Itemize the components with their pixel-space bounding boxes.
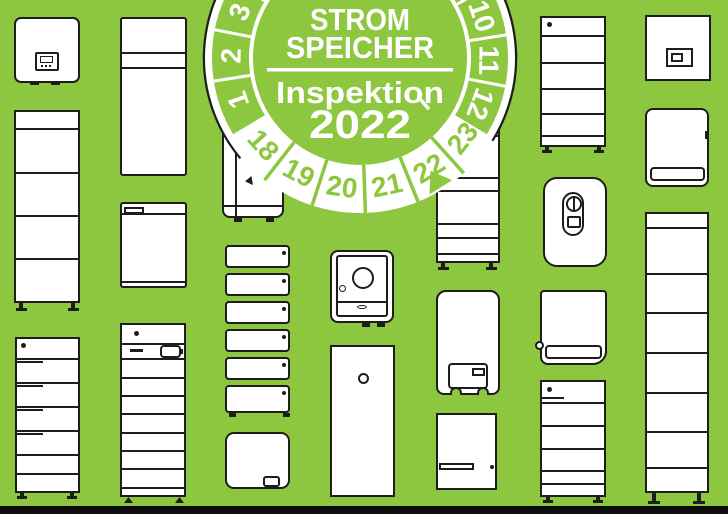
vent-slot (17, 433, 43, 435)
slim-storage-cabinet (120, 17, 187, 176)
cabinet-with-slot (540, 290, 607, 365)
device-foot (648, 501, 660, 504)
stackable-battery-module (225, 357, 290, 380)
vent-dash (130, 349, 143, 352)
seam-line (122, 67, 185, 69)
seam-line (122, 377, 184, 379)
vent-slot (650, 167, 705, 181)
round-storage-with-control (543, 177, 607, 267)
led-indicator (547, 22, 552, 27)
seam-line (542, 483, 604, 485)
seam-line (542, 448, 604, 450)
badge-title-line2: SPEICHER (286, 30, 434, 65)
storage-with-display (436, 290, 500, 395)
device-foot (68, 308, 79, 311)
vent-slot (545, 345, 602, 359)
device-foot (594, 150, 604, 153)
side-button (339, 285, 346, 292)
device-foot (17, 496, 27, 499)
device-foot (652, 493, 656, 501)
poster-background: 123101112181920212223 STROM SPEICHER Ins… (0, 0, 728, 514)
seam-line (122, 432, 184, 434)
stackable-battery-module (225, 385, 290, 413)
inverter-with-display (645, 15, 711, 81)
led-indicator (282, 307, 286, 311)
seam-line (122, 358, 184, 360)
device-foot (693, 501, 705, 504)
status-slot (357, 305, 367, 309)
seam-line (122, 52, 185, 54)
battery-tower-vented (15, 337, 80, 493)
foot-arch (477, 387, 489, 395)
seam-line (647, 392, 707, 394)
connector-nub (51, 82, 60, 85)
vent-slot (542, 397, 564, 399)
seam-line (338, 301, 386, 303)
battery-icon-nub (180, 349, 183, 354)
connector-nub (30, 82, 39, 85)
seam-line (438, 237, 498, 239)
vent-slot (17, 385, 43, 387)
tall-battery-tower (645, 212, 709, 493)
stackable-battery-module (225, 301, 290, 324)
solar-inverter (14, 17, 80, 83)
wall-storage-with-vent (645, 108, 709, 187)
seam-line (16, 172, 78, 174)
seam-line (122, 468, 184, 470)
seam-line (542, 402, 604, 404)
seam-line (122, 450, 184, 452)
device-foot (697, 493, 701, 501)
seam-line (542, 425, 604, 427)
wall-unit-with-tab (120, 202, 187, 288)
vent-slot (439, 463, 474, 470)
stackable-battery-module (225, 273, 290, 296)
device-foot (124, 497, 133, 503)
led-indicator (282, 251, 286, 255)
device-foot (16, 308, 27, 311)
ring-number: 11 (473, 45, 505, 75)
display-dot (41, 65, 43, 67)
handle-tab (124, 207, 144, 214)
seam-line (647, 273, 707, 275)
seam-line (17, 358, 78, 360)
inverter-display (35, 52, 59, 71)
stackable-battery-module (225, 329, 290, 352)
seam-line (122, 395, 184, 397)
inverter-display (666, 48, 693, 67)
seam-line (647, 467, 707, 469)
led-indicator (282, 363, 286, 367)
led-indicator (21, 343, 26, 348)
control-button (567, 216, 581, 228)
display-panel (448, 363, 488, 389)
device-foot (543, 500, 553, 503)
battery-tower-small (540, 380, 606, 497)
seam-line (17, 430, 78, 432)
side-knob (535, 341, 544, 350)
wallbox-charger (225, 432, 290, 489)
seam-line (17, 382, 78, 384)
dial-circle (352, 267, 374, 289)
segment-separator (364, 165, 366, 213)
seam-line (16, 128, 78, 130)
bottom-edge-bar (0, 506, 728, 514)
slim-tower-unit (330, 345, 395, 497)
display-dot (49, 65, 51, 67)
battery-cabinet-4-module (14, 110, 80, 303)
button-circle (358, 373, 369, 384)
seam-line (542, 62, 604, 64)
led-indicator (547, 387, 552, 392)
seam-line (542, 113, 604, 115)
led-indicator (282, 335, 286, 339)
battery-rack-8-module (120, 323, 186, 497)
badge-divider (267, 68, 453, 72)
ring-number: 21 (369, 167, 406, 204)
seam-line (542, 470, 604, 472)
seam-line (17, 406, 78, 408)
dial-line (573, 197, 575, 211)
charge-port (263, 476, 280, 487)
display-screen (472, 368, 485, 376)
display-screen (671, 53, 683, 62)
led-indicator (490, 465, 494, 469)
foot-arch (450, 387, 462, 395)
led-indicator (134, 331, 139, 336)
battery-tower-with-led (540, 16, 606, 147)
seam-line (17, 473, 78, 475)
device-foot (438, 267, 449, 270)
seam-line (647, 227, 707, 229)
seam-line (542, 35, 604, 37)
ring-number: 2 (215, 48, 246, 64)
seam-line (122, 487, 184, 489)
vented-wall-box (436, 413, 497, 490)
device-foot (377, 323, 385, 327)
device-foot (67, 496, 77, 499)
display-screen (40, 56, 53, 63)
device-foot (542, 150, 552, 153)
vent-slot (17, 409, 43, 411)
device-foot (229, 413, 236, 417)
seam-line (16, 258, 78, 260)
battery-icon (160, 345, 181, 358)
front-panel (336, 255, 388, 317)
device-foot (593, 500, 603, 503)
device-foot (486, 267, 497, 270)
badge-year-text: 2022 (309, 103, 411, 147)
seam-line (542, 88, 604, 90)
seam-line (122, 281, 185, 283)
device-foot (362, 323, 370, 327)
seam-line (122, 413, 184, 415)
ring-number: 20 (324, 169, 359, 204)
seam-line (647, 312, 707, 314)
stackable-battery-module (225, 245, 290, 268)
seam-line (542, 135, 604, 137)
seam-line (647, 352, 707, 354)
display-dot (45, 65, 47, 67)
seam-line (16, 215, 78, 217)
seam-line (647, 431, 707, 433)
seam-line (438, 253, 498, 255)
led-indicator (282, 279, 286, 283)
seam-line (17, 454, 78, 456)
vent-slot (17, 361, 43, 363)
device-foot (175, 497, 184, 503)
side-nub (705, 131, 709, 139)
led-indicator (282, 391, 286, 395)
compact-storage-with-dial (330, 250, 394, 323)
device-foot (283, 413, 290, 417)
inspection-badge: 123101112181920212223 STROM SPEICHER Ins… (198, 0, 522, 228)
